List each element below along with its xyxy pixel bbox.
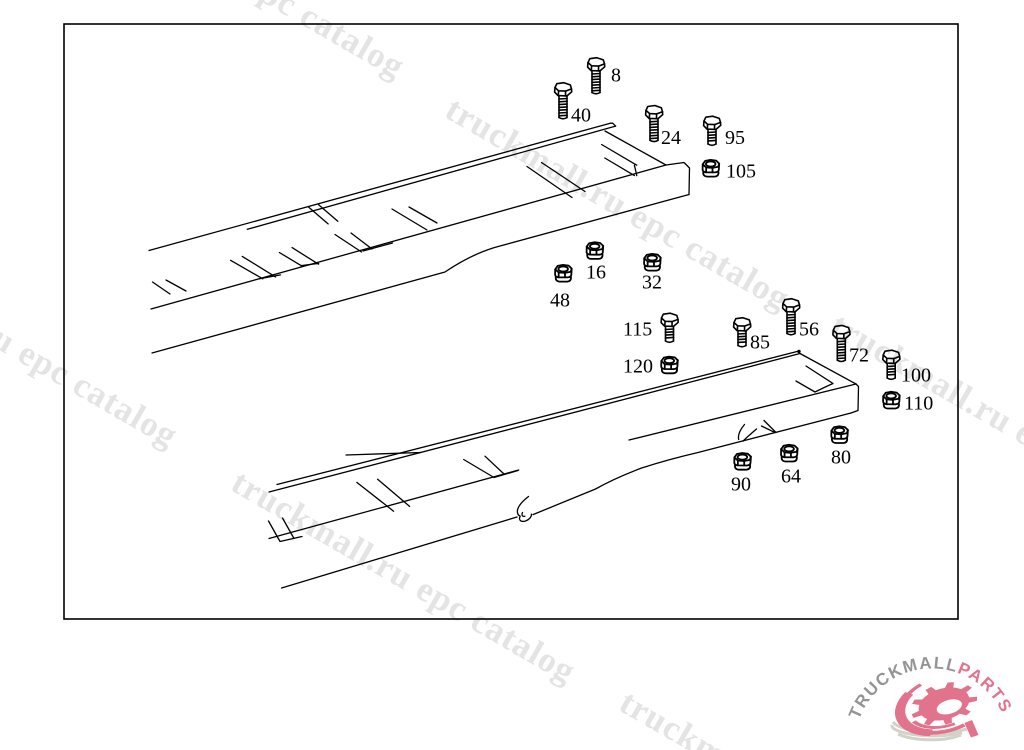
svg-text:truckmall.ru epc catalog: truckmall.ru epc catalog bbox=[824, 305, 1024, 534]
svg-text:56: 56 bbox=[799, 319, 819, 341]
svg-text:85: 85 bbox=[750, 332, 770, 354]
svg-text:40: 40 bbox=[571, 105, 591, 127]
svg-text:48: 48 bbox=[550, 290, 570, 312]
svg-text:115: 115 bbox=[623, 319, 652, 341]
svg-text:64: 64 bbox=[781, 466, 801, 488]
svg-text:24: 24 bbox=[661, 127, 681, 149]
svg-text:truckmall.ru epc catalog: truckmall.ru epc catalog bbox=[54, 0, 412, 86]
svg-text:truckmall.ru epc catalog: truckmall.ru epc catalog bbox=[439, 89, 797, 318]
svg-text:105: 105 bbox=[726, 161, 756, 183]
svg-text:90: 90 bbox=[731, 474, 751, 496]
svg-text:80: 80 bbox=[831, 447, 851, 469]
svg-text:120: 120 bbox=[623, 356, 653, 378]
svg-text:72: 72 bbox=[849, 345, 869, 367]
svg-text:truckmall.ru epc catalog: truckmall.ru epc catalog bbox=[0, 226, 185, 455]
svg-text:110: 110 bbox=[904, 393, 933, 415]
svg-text:100: 100 bbox=[901, 365, 931, 387]
svg-text:16: 16 bbox=[586, 262, 606, 284]
svg-text:95: 95 bbox=[725, 127, 745, 149]
svg-text:32: 32 bbox=[642, 272, 662, 294]
svg-text:8: 8 bbox=[611, 65, 621, 87]
